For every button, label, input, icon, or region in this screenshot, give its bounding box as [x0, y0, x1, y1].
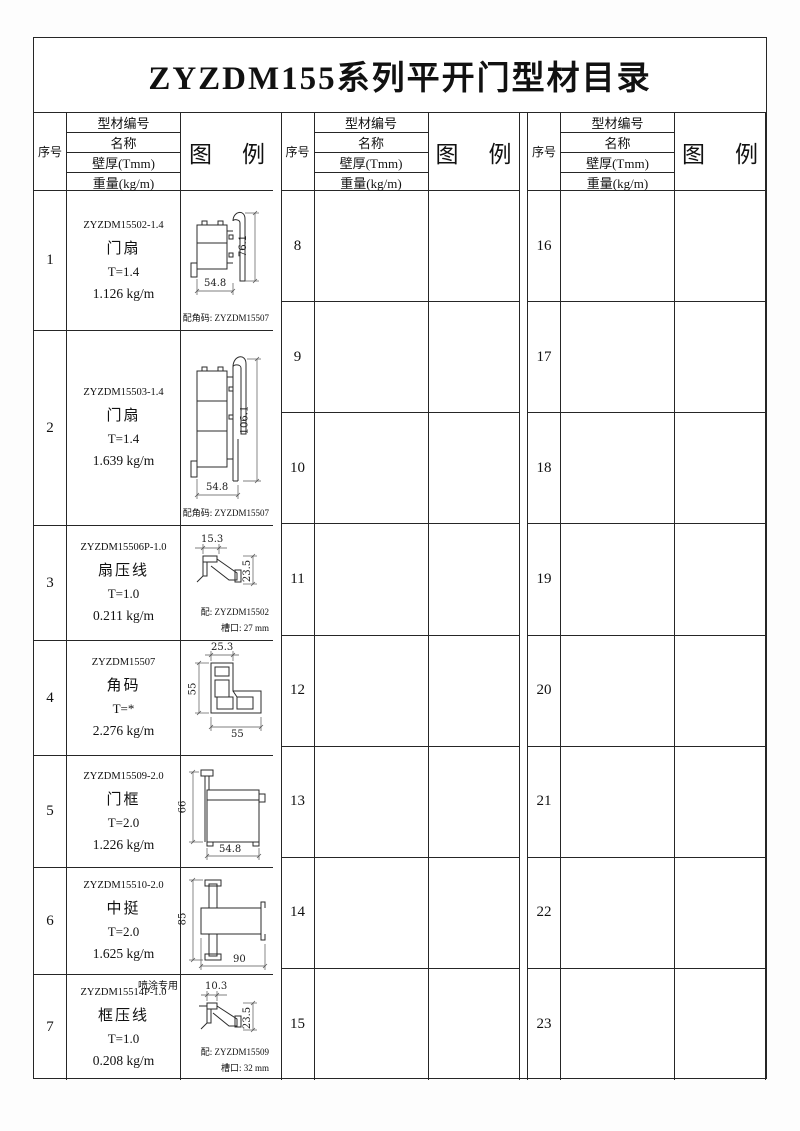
profile-diagram — [429, 747, 519, 857]
table-row: 22 — [528, 858, 765, 969]
profile-diagram: 15.3 23.5 配: ZYZDM15502 槽口: 27 mm — [181, 526, 273, 640]
profile-thickness: T=1.0 — [108, 586, 140, 602]
row-info — [561, 858, 675, 968]
row-serial: 4 — [34, 641, 67, 755]
profile-weight: 1.126 kg/m — [93, 286, 155, 302]
legend-char-right: 例 — [489, 135, 512, 169]
dim-label: 85 — [178, 913, 188, 926]
dim-label: 54.8 — [206, 483, 228, 493]
row-serial: 23 — [528, 969, 561, 1080]
header-name: 名称 — [561, 133, 674, 153]
header-legend: 图 例 — [429, 113, 519, 190]
profile-name: 门扇 — [106, 237, 140, 258]
legend-char-left: 图 — [436, 135, 459, 169]
catalog-sheet: ZYZDM155系列平开门型材目录 序号 型材编号 名称 壁厚(Tmm) 重量(… — [33, 37, 767, 1079]
profile-diagram — [675, 747, 765, 857]
spray-coating-annotation: 喷涂专用 — [138, 977, 178, 992]
row-serial: 6 — [34, 868, 67, 974]
row-serial: 3 — [34, 526, 67, 640]
header-name: 名称 — [315, 133, 428, 153]
table-row: 12 — [282, 636, 519, 747]
row-serial: 16 — [528, 191, 561, 301]
profile-diagram — [675, 302, 765, 412]
header-info: 型材编号 名称 壁厚(Tmm) 重量(kg/m) — [561, 113, 675, 190]
profile-diagram: 10.3 23.5 配: ZYZDM15509 槽口: 32 mm — [181, 975, 273, 1080]
table-row: 16 — [528, 191, 765, 302]
profile-diagram — [429, 191, 519, 301]
row-info: ZYZDM15510-2.0 中挺 T=2.0 1.625 kg/m — [67, 868, 181, 974]
row-info: ZYZDM15507 角码 T=* 2.276 kg/m — [67, 641, 181, 755]
row-info — [561, 191, 675, 301]
header-name: 名称 — [67, 133, 180, 153]
profile-diagram: 66 54.8 — [181, 756, 273, 867]
group-body: 16 17 18 19 20 21 22 23 — [528, 191, 765, 1080]
table-row: 23 — [528, 969, 765, 1080]
dim-label: 55 — [231, 730, 244, 740]
row-serial: 2 — [34, 331, 67, 525]
group-body: 1 ZYZDM15502-1.4 门扇 T=1.4 1.126 kg/m — [34, 191, 273, 1080]
profile-diagram — [675, 636, 765, 746]
row-info — [315, 636, 429, 746]
table-row: 2 ZYZDM15503-1.4 门扇 T=1.4 1.639 kg/m — [34, 331, 273, 526]
profile-weight: 1.226 kg/m — [93, 837, 155, 853]
row-info: ZYZDM15509-2.0 门框 T=2.0 1.226 kg/m — [67, 756, 181, 867]
header-code: 型材编号 — [315, 113, 428, 133]
profile-name: 中挺 — [106, 897, 140, 918]
profile-thickness: T=2.0 — [108, 815, 140, 831]
dim-label: 10.3 — [205, 982, 227, 992]
row-info — [561, 524, 675, 634]
profile-diagram: 85 90 — [181, 868, 273, 974]
group-middle: 序号 型材编号 名称 壁厚(Tmm) 重量(kg/m) 图 例 8 9 10 1… — [281, 113, 520, 1080]
group-header: 序号 型材编号 名称 壁厚(Tmm) 重量(kg/m) 图 例 — [528, 113, 765, 191]
row-info — [561, 413, 675, 523]
table-row: 5 ZYZDM15509-2.0 门框 T=2.0 1.226 kg/m — [34, 756, 273, 868]
header-thickness: 壁厚(Tmm) — [561, 153, 674, 173]
row-serial: 20 — [528, 636, 561, 746]
header-weight: 重量(kg/m) — [67, 173, 180, 192]
profile-diagram — [429, 524, 519, 634]
table-row: 4 ZYZDM15507 角码 T=* 2.276 kg/m — [34, 641, 273, 756]
table-row: 11 — [282, 524, 519, 635]
dim-label: 15.3 — [201, 535, 223, 545]
dim-label: 106.1 — [240, 406, 250, 435]
table-row: 喷涂专用 7 ZYZDM15514P-1.0 框压线 T=1.0 0.208 k… — [34, 975, 273, 1080]
table-row: 3 ZYZDM15506P-1.0 扇压线 T=1.0 0.211 kg/m — [34, 526, 273, 641]
row-serial: 14 — [282, 858, 315, 968]
header-serial: 序号 — [528, 113, 561, 190]
note-line: 配角码: ZYZDM15507 — [183, 505, 269, 521]
row-serial: 22 — [528, 858, 561, 968]
row-info — [561, 747, 675, 857]
table-row: 6 ZYZDM15510-2.0 中挺 T=2.0 1.625 kg/m — [34, 868, 273, 975]
note-line: 槽口: 32 mm — [201, 1060, 269, 1076]
profile-code: ZYZDM15507 — [92, 657, 156, 668]
table-row: 20 — [528, 636, 765, 747]
header-info: 型材编号 名称 壁厚(Tmm) 重量(kg/m) — [315, 113, 429, 190]
corner-cleat-profile-drawing — [181, 641, 271, 755]
profile-name: 门框 — [106, 788, 140, 809]
legend-char-right: 例 — [735, 135, 758, 169]
profile-thickness: T=1.4 — [108, 264, 140, 280]
profile-diagram — [675, 858, 765, 968]
profile-diagram — [675, 524, 765, 634]
row-serial: 21 — [528, 747, 561, 857]
row-info — [315, 858, 429, 968]
note-line: 配: ZYZDM15509 — [201, 1044, 269, 1060]
group-header: 序号 型材编号 名称 壁厚(Tmm) 重量(kg/m) 图 例 — [282, 113, 519, 191]
row-serial: 7 — [34, 975, 67, 1080]
dim-label: 76.1 — [239, 235, 249, 257]
header-info: 型材编号 名称 壁厚(Tmm) 重量(kg/m) — [67, 113, 181, 190]
header-thickness: 壁厚(Tmm) — [67, 153, 180, 173]
note-line: 槽口: 27 mm — [201, 620, 269, 636]
header-weight: 重量(kg/m) — [315, 173, 428, 192]
header-legend: 图 例 — [181, 113, 273, 190]
row-info — [315, 747, 429, 857]
profile-weight: 0.211 kg/m — [93, 608, 154, 624]
table-row: 14 — [282, 858, 519, 969]
profile-diagram — [429, 413, 519, 523]
row-serial: 15 — [282, 969, 315, 1080]
dim-label: 55 — [188, 683, 198, 696]
group-left: 序号 型材编号 名称 壁厚(Tmm) 重量(kg/m) 图 例 1 ZYZDM1… — [34, 113, 273, 1080]
profile-code: ZYZDM15509-2.0 — [83, 771, 163, 782]
row-info — [315, 302, 429, 412]
table-groups: 序号 型材编号 名称 壁厚(Tmm) 重量(kg/m) 图 例 1 ZYZDM1… — [34, 113, 766, 1080]
row-info — [315, 524, 429, 634]
row-serial: 10 — [282, 413, 315, 523]
profile-diagram: 106.1 54.8 配角码: ZYZDM15507 — [181, 331, 273, 525]
profile-diagram — [429, 969, 519, 1080]
profile-weight: 1.625 kg/m — [93, 946, 155, 962]
profile-name: 角码 — [106, 674, 140, 695]
profile-diagram — [675, 413, 765, 523]
table-row: 17 — [528, 302, 765, 413]
note-line: 配角码: ZYZDM15507 — [183, 310, 269, 326]
table-row: 15 — [282, 969, 519, 1080]
profile-diagram — [429, 636, 519, 746]
profile-thickness: T=2.0 — [108, 924, 140, 940]
profile-name: 门扇 — [106, 404, 140, 425]
profile-thickness: T=1.0 — [108, 1031, 140, 1047]
door-sash-tall-profile-drawing — [181, 331, 271, 525]
header-code: 型材编号 — [561, 113, 674, 133]
header-serial: 序号 — [282, 113, 315, 190]
dim-label: 25.3 — [211, 643, 233, 653]
group-header: 序号 型材编号 名称 壁厚(Tmm) 重量(kg/m) 图 例 — [34, 113, 273, 191]
row-serial: 13 — [282, 747, 315, 857]
group-body: 8 9 10 11 12 13 14 15 — [282, 191, 519, 1080]
dim-label: 23.5 — [243, 1007, 253, 1029]
header-serial: 序号 — [34, 113, 67, 190]
table-row: 18 — [528, 413, 765, 524]
table-row: 1 ZYZDM15502-1.4 门扇 T=1.4 1.126 kg/m — [34, 191, 273, 331]
row-serial: 17 — [528, 302, 561, 412]
profile-diagram: 76.1 54.8 配角码: ZYZDM15507 — [181, 191, 273, 330]
row-serial: 1 — [34, 191, 67, 330]
header-code: 型材编号 — [67, 113, 180, 133]
profile-diagram: 25.3 55 55 — [181, 641, 273, 755]
dim-label: 90 — [233, 955, 246, 965]
row-serial: 9 — [282, 302, 315, 412]
legend-char-left: 图 — [682, 135, 705, 169]
legend-char-right: 例 — [242, 135, 265, 169]
table-row: 13 — [282, 747, 519, 858]
table-row: 19 — [528, 524, 765, 635]
row-serial: 11 — [282, 524, 315, 634]
diagram-note: 配角码: ZYZDM15507 — [183, 505, 269, 521]
legend-char-left: 图 — [189, 135, 212, 169]
row-info — [315, 413, 429, 523]
dim-label: 66 — [178, 801, 188, 814]
mullion-profile-drawing — [181, 868, 271, 974]
profile-thickness: T=1.4 — [108, 431, 140, 447]
header-weight: 重量(kg/m) — [561, 173, 674, 192]
profile-code: ZYZDM15502-1.4 — [83, 220, 163, 231]
row-info — [561, 302, 675, 412]
profile-weight: 2.276 kg/m — [93, 723, 155, 739]
table-row: 10 — [282, 413, 519, 524]
profile-code: ZYZDM15506P-1.0 — [80, 542, 166, 553]
profile-diagram — [675, 191, 765, 301]
dim-label: 54.8 — [204, 279, 226, 289]
row-info: ZYZDM15503-1.4 门扇 T=1.4 1.639 kg/m — [67, 331, 181, 525]
row-serial: 18 — [528, 413, 561, 523]
row-info: ZYZDM15502-1.4 门扇 T=1.4 1.126 kg/m — [67, 191, 181, 330]
header-thickness: 壁厚(Tmm) — [315, 153, 428, 173]
row-serial: 12 — [282, 636, 315, 746]
diagram-note: 配角码: ZYZDM15507 — [183, 310, 269, 326]
profile-name: 框压线 — [98, 1004, 149, 1025]
group-right: 序号 型材编号 名称 壁厚(Tmm) 重量(kg/m) 图 例 16 17 18… — [527, 113, 766, 1080]
diagram-note: 配: ZYZDM15509 槽口: 32 mm — [201, 1044, 269, 1076]
profile-thickness: T=* — [113, 701, 135, 717]
profile-weight: 0.208 kg/m — [93, 1053, 155, 1069]
row-info — [315, 969, 429, 1080]
dim-label: 23.5 — [243, 560, 253, 582]
row-serial: 8 — [282, 191, 315, 301]
dim-label: 54.8 — [219, 845, 241, 855]
note-line: 配: ZYZDM15502 — [201, 604, 269, 620]
row-info — [561, 636, 675, 746]
table-row: 8 — [282, 191, 519, 302]
row-info — [561, 969, 675, 1080]
profile-code: ZYZDM15510-2.0 — [83, 880, 163, 891]
title-band: ZYZDM155系列平开门型材目录 — [34, 38, 766, 113]
profile-weight: 1.639 kg/m — [93, 453, 155, 469]
header-legend: 图 例 — [675, 113, 765, 190]
profile-diagram — [429, 858, 519, 968]
row-info: ZYZDM15506P-1.0 扇压线 T=1.0 0.211 kg/m — [67, 526, 181, 640]
profile-diagram — [675, 969, 765, 1080]
page-title: ZYZDM155系列平开门型材目录 — [148, 51, 651, 99]
row-serial: 19 — [528, 524, 561, 634]
row-serial: 5 — [34, 756, 67, 867]
table-row: 9 — [282, 302, 519, 413]
profile-name: 扇压线 — [98, 559, 149, 580]
catalog-page: ZYZDM155系列平开门型材目录 序号 型材编号 名称 壁厚(Tmm) 重量(… — [0, 0, 800, 1131]
table-row: 21 — [528, 747, 765, 858]
diagram-note: 配: ZYZDM15502 槽口: 27 mm — [201, 604, 269, 636]
profile-diagram — [429, 302, 519, 412]
profile-code: ZYZDM15503-1.4 — [83, 387, 163, 398]
row-info — [315, 191, 429, 301]
